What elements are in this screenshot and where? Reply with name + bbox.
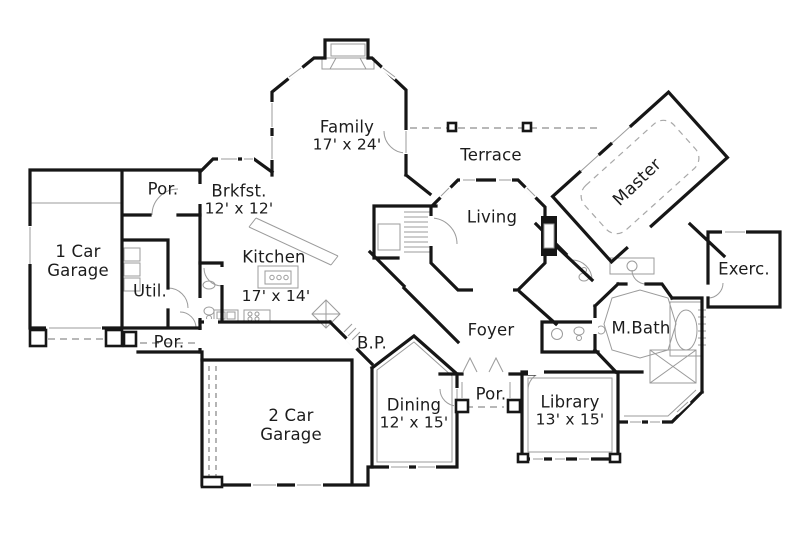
family-label: Family 17' x 24' [313, 117, 382, 154]
dining-label: Dining 12' x 15' [380, 395, 449, 432]
master-bath-name: M.Bath [611, 318, 670, 337]
garage2-label: 2 Car Garage [253, 406, 329, 444]
butlers-pantry-label: B.P. [357, 333, 387, 352]
front-porch-name: Por. [476, 384, 507, 403]
garage1-label: 1 Car Garage [40, 242, 116, 280]
exercise-name: Exerc. [718, 259, 770, 278]
kitchen-dims-label: 17' x 14' [242, 288, 311, 306]
floorplan-drawing [0, 0, 800, 535]
utility-name: Util. [133, 281, 167, 300]
foyer-name: Foyer [468, 320, 515, 339]
breakfast-dims: 12' x 12' [205, 201, 274, 219]
garage2-name: 2 Car Garage [253, 406, 329, 444]
living-fireplace-icon [541, 216, 557, 256]
living-label: Living [467, 207, 517, 226]
library-name: Library [536, 392, 605, 411]
family-dims: 17' x 24' [313, 137, 382, 155]
front-porch-label: Por. [476, 384, 507, 403]
kitchen-label: Kitchen [242, 247, 305, 266]
breakfast-label: Brkfst. 12' x 12' [205, 181, 274, 218]
floor-plan-page: Family 17' x 24' Terrace Master Por. Brk… [0, 0, 800, 535]
utility-label: Util. [133, 281, 167, 300]
porch-bottom-left-label: Por. [154, 332, 185, 351]
foyer-label: Foyer [468, 320, 515, 339]
terrace-post [523, 123, 531, 131]
porch-bottom-left-name: Por. [154, 332, 185, 351]
dining-name: Dining [380, 395, 449, 414]
butlers-pantry-name: B.P. [357, 333, 387, 352]
porch-top-label: Por. [148, 179, 179, 198]
kitchen-name: Kitchen [242, 247, 305, 266]
master-bath-label: M.Bath [611, 318, 670, 337]
exercise-label: Exerc. [718, 259, 770, 278]
garage1-name: 1 Car Garage [40, 242, 116, 280]
family-name: Family [313, 117, 382, 136]
terrace-post [448, 123, 456, 131]
library-dims: 13' x 15' [536, 412, 605, 430]
porch-top-name: Por. [148, 179, 179, 198]
terrace-label: Terrace [460, 145, 521, 164]
breakfast-name: Brkfst. [205, 181, 274, 200]
library-label: Library 13' x 15' [536, 392, 605, 429]
terrace-name: Terrace [460, 145, 521, 164]
kitchen-dims: 17' x 14' [242, 288, 311, 306]
living-name: Living [467, 207, 517, 226]
dining-dims: 12' x 15' [380, 415, 449, 433]
garage2-door-dashed-line [209, 366, 216, 478]
